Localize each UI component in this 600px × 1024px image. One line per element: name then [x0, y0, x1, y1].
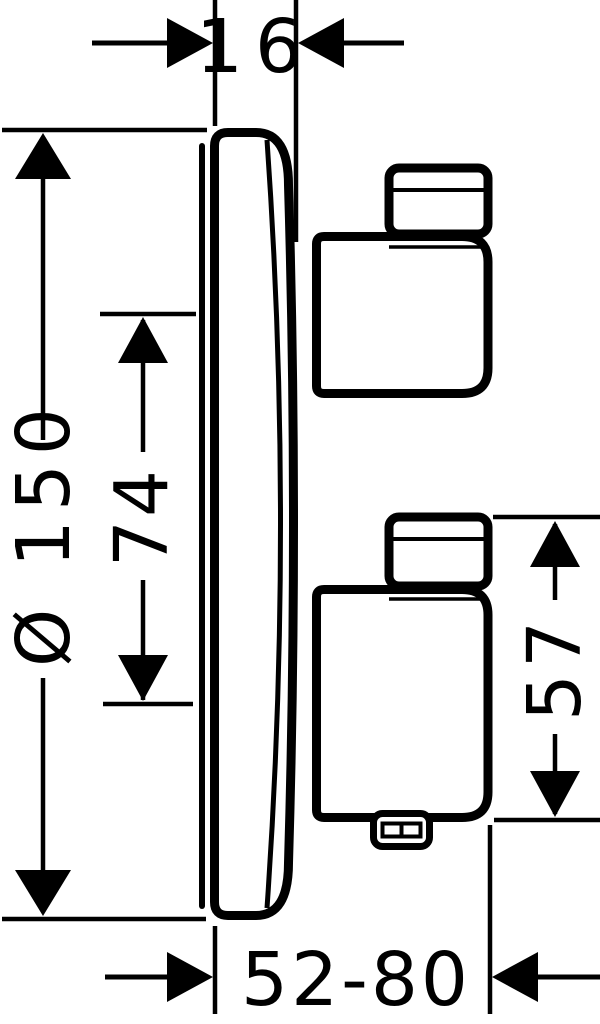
- upper-handle: [317, 168, 489, 394]
- lower-handle-knob: [389, 517, 488, 586]
- upper-handle-body: [317, 237, 489, 394]
- dim-spacing-arrowhead-bottom: [118, 655, 168, 701]
- safety-clip-window-left: [383, 824, 402, 837]
- dimension-drawing-page: 16 Ø 150 74: [0, 0, 600, 1024]
- dim-range-arrowhead-right: [492, 952, 538, 1002]
- dim-spacing-label: 74: [99, 467, 185, 567]
- dim-height-label: 57: [512, 615, 598, 721]
- dim-diameter-arrowhead-bottom: [15, 870, 71, 916]
- lower-handle-body: [317, 590, 489, 818]
- dim-range-label: 52-80: [241, 937, 471, 1023]
- dim-height-arrowhead-top: [530, 521, 580, 567]
- upper-handle-knob: [389, 168, 488, 234]
- dim-depth-range: 52-80: [105, 825, 600, 1023]
- dim-handle-height: 57: [493, 517, 600, 820]
- lower-handle: [317, 517, 489, 847]
- technical-drawing-canvas: 16 Ø 150 74: [0, 0, 600, 1024]
- safety-clip-window-right: [402, 824, 421, 837]
- dim-axis-spacing: 74: [99, 314, 196, 704]
- faceplate: [202, 133, 294, 916]
- dim-height-arrowhead-bottom: [530, 771, 580, 817]
- dim-range-arrowhead-left: [167, 952, 213, 1002]
- dim-diameter-arrowhead-top: [15, 133, 71, 179]
- dim-depth-label: 16: [196, 4, 314, 90]
- dim-spacing-arrowhead-top: [118, 317, 168, 363]
- dim-diameter-label: Ø 150: [1, 399, 87, 667]
